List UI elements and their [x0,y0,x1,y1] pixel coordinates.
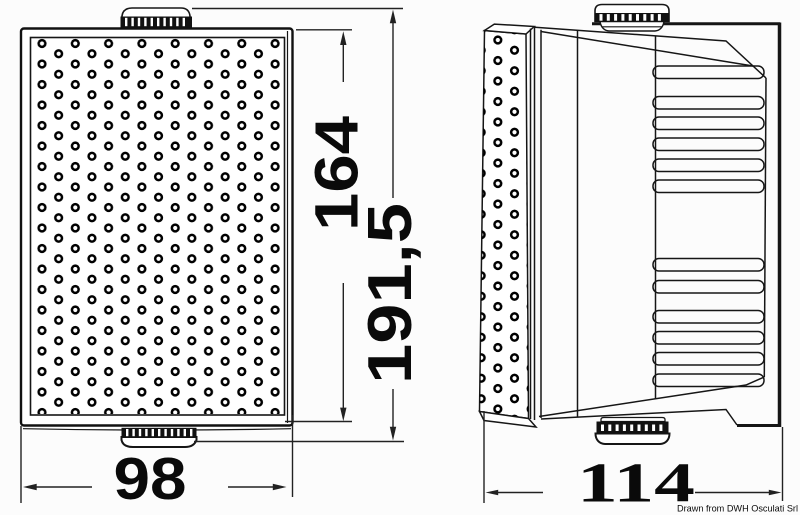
svg-text:Drawn from DWH Osculati Srl: Drawn from DWH Osculati Srl [677,504,798,515]
svg-text:191,5: 191,5 [356,203,425,384]
svg-text:98: 98 [114,445,187,512]
